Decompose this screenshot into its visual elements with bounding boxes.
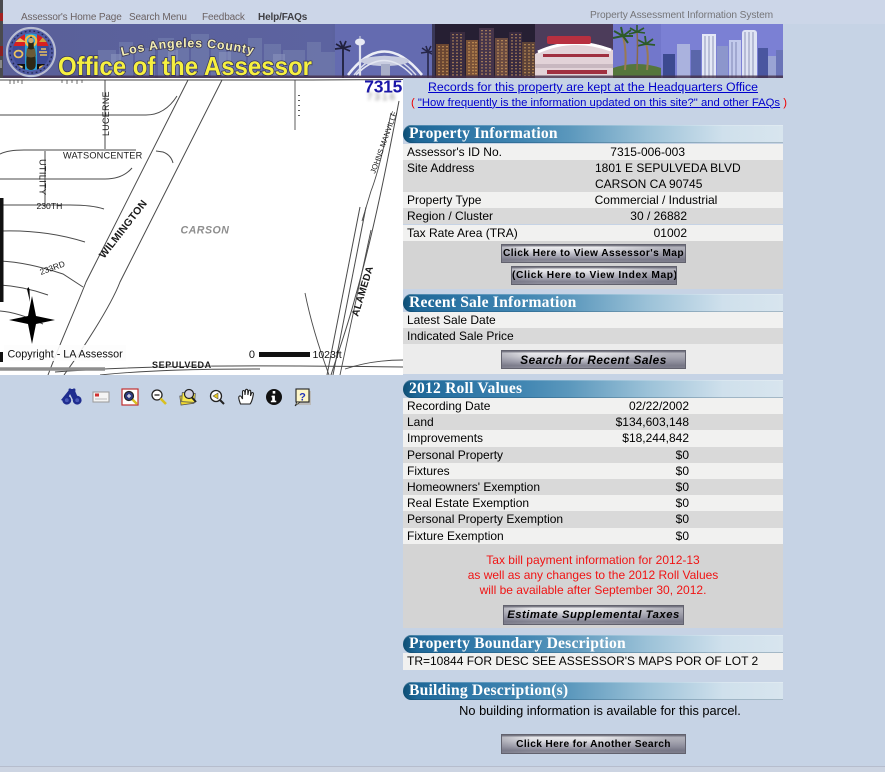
svg-text:Copyright - LA Assessor: Copyright - LA Assessor [8, 349, 124, 361]
svg-text:1023ft: 1023ft [313, 349, 342, 361]
svg-text:0: 0 [249, 349, 255, 361]
svg-text:?: ? [299, 392, 306, 404]
svg-text:230TH: 230TH [37, 201, 63, 211]
svg-text:WATSONCENTER: WATSONCENTER [63, 151, 143, 161]
svg-text:7316: 7316 [367, 92, 397, 103]
svg-text:UTILITY: UTILITY [38, 159, 48, 195]
svg-text:SEPULVEDA: SEPULVEDA [152, 360, 212, 370]
svg-text:CARSON: CARSON [181, 225, 230, 237]
svg-text:LUCERNE: LUCERNE [101, 91, 111, 136]
svg-text:Office of the Assessor: Office of the Assessor [58, 51, 312, 78]
